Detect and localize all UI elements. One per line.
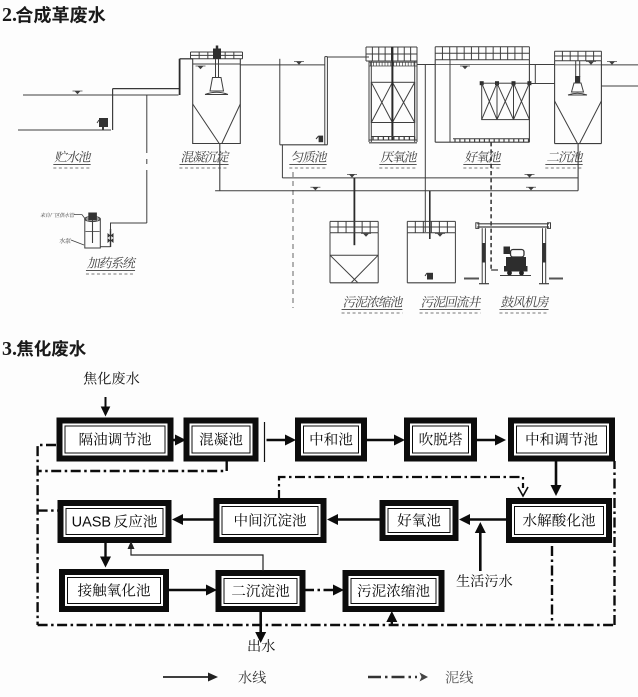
svg-text:3.: 3. xyxy=(2,338,17,360)
svg-text:2.: 2. xyxy=(2,4,17,26)
svg-text:UASB: UASB xyxy=(72,515,112,531)
